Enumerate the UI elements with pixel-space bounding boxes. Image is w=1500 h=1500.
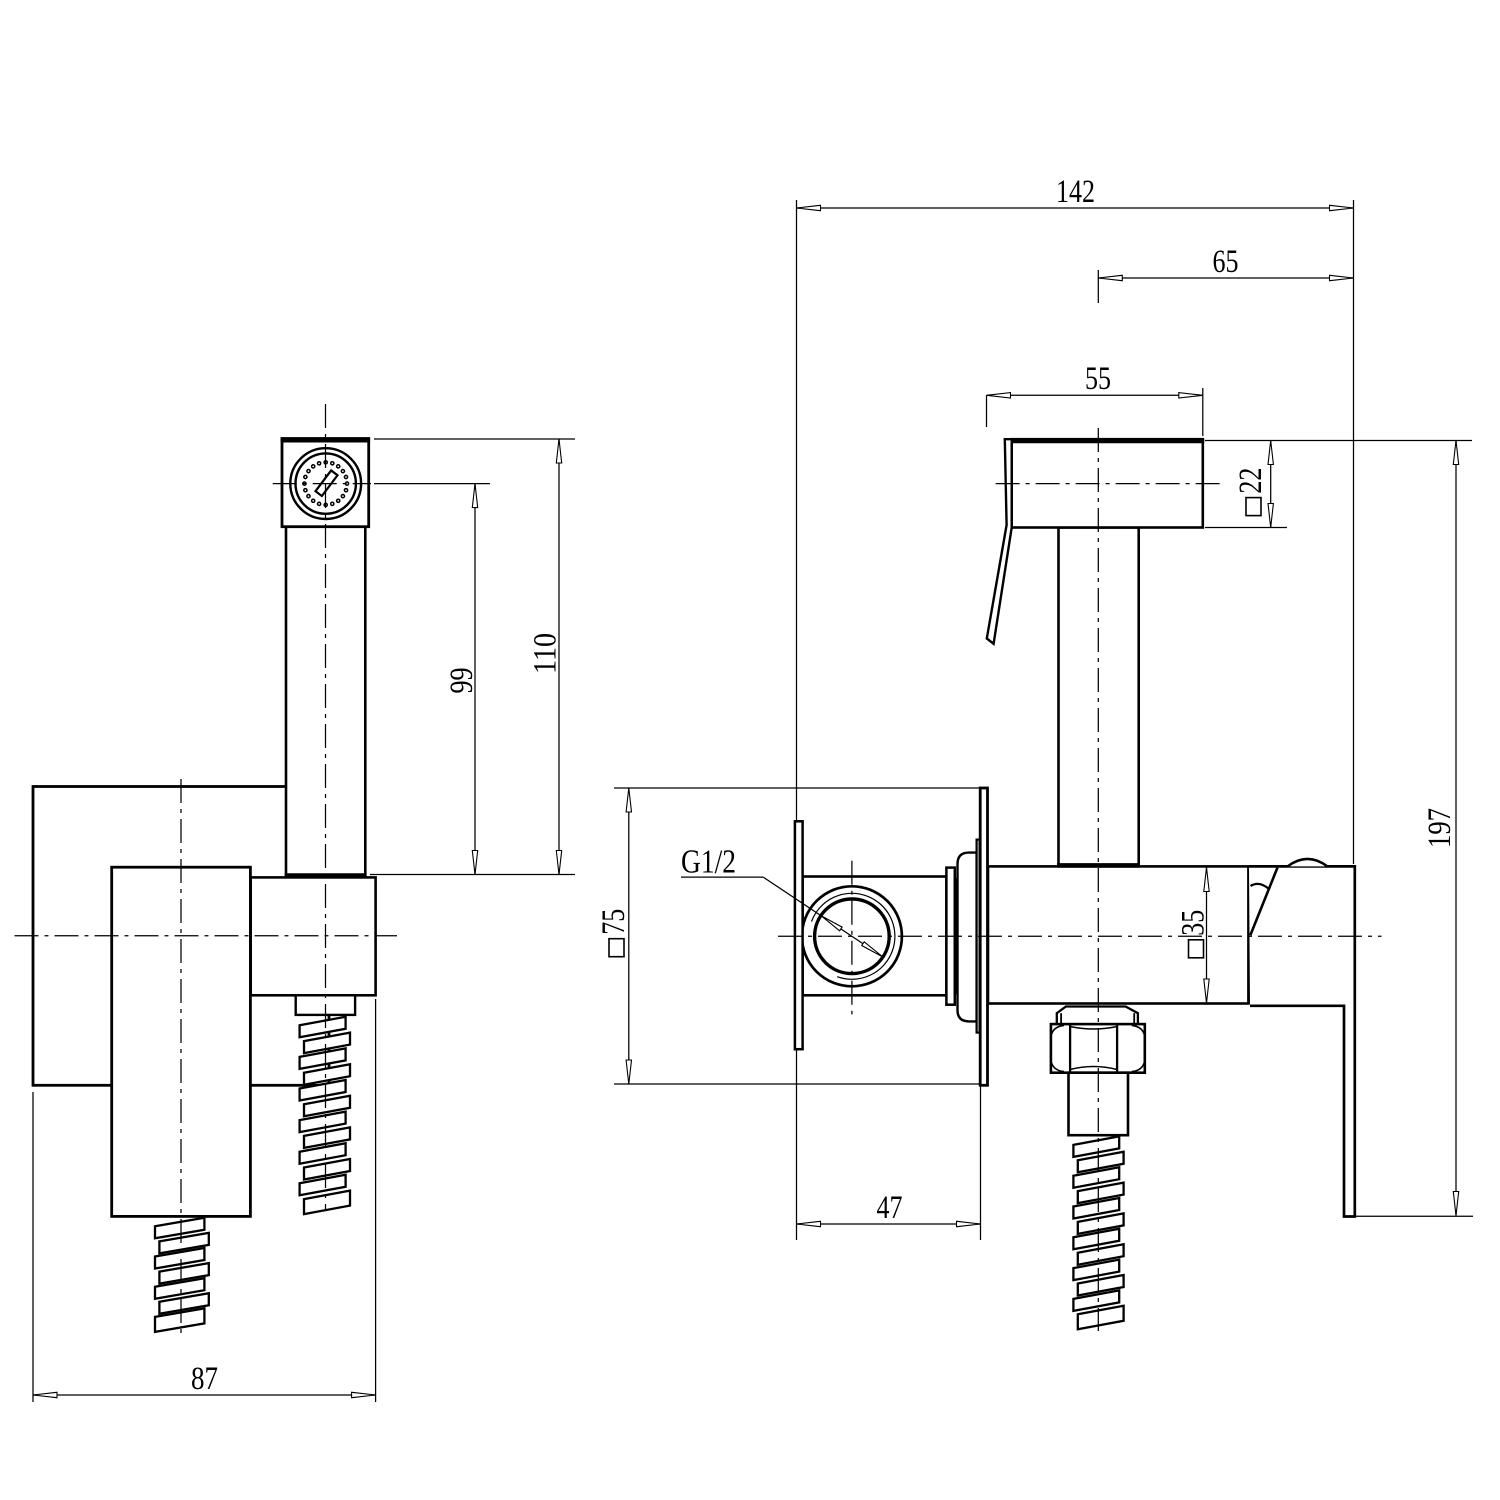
svg-text:22: 22 (1233, 468, 1269, 494)
svg-text:47: 47 (877, 1190, 903, 1226)
svg-text:35: 35 (1176, 910, 1212, 936)
svg-text:75: 75 (596, 909, 632, 935)
svg-text:142: 142 (1056, 174, 1095, 210)
svg-text:G1/2: G1/2 (681, 844, 736, 881)
svg-text:55: 55 (1085, 361, 1111, 397)
svg-text:65: 65 (1213, 244, 1239, 280)
svg-text:197: 197 (1422, 808, 1458, 848)
svg-text:87: 87 (191, 1361, 218, 1397)
svg-text:99: 99 (444, 668, 480, 694)
svg-text:110: 110 (528, 633, 564, 674)
